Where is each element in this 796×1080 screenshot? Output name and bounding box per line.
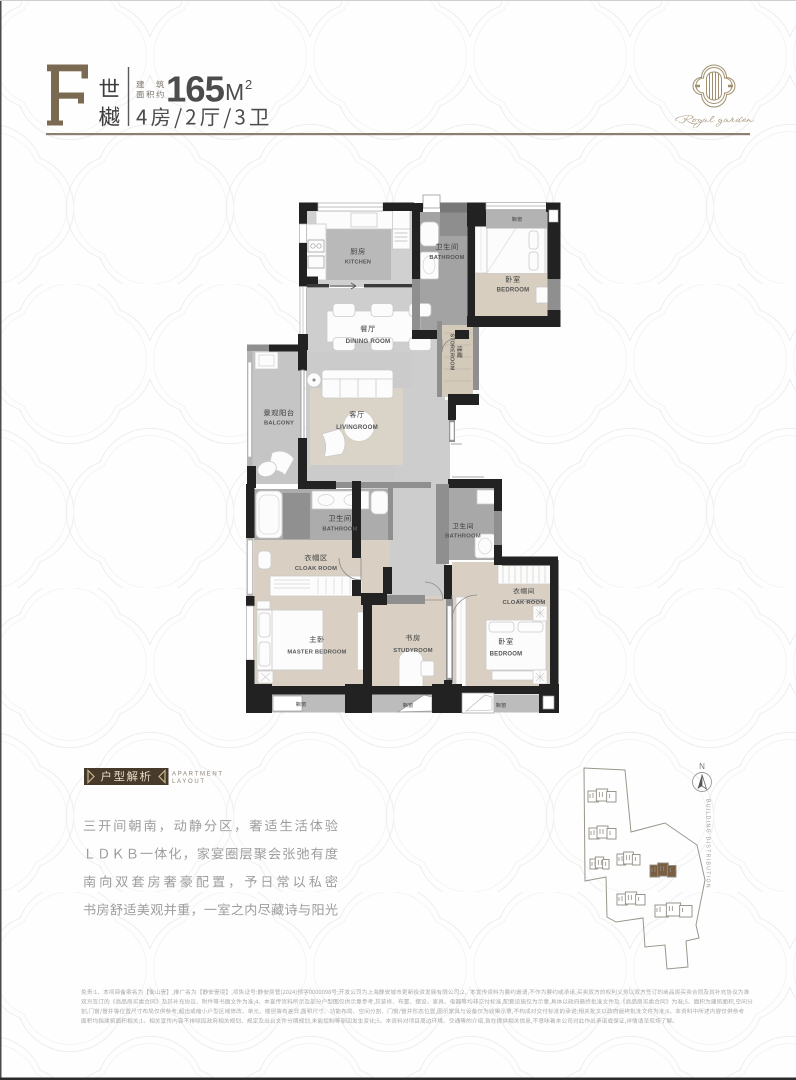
svg-text:BALCONY: BALCONY xyxy=(264,421,294,427)
svg-text:165: 165 xyxy=(166,69,225,110)
svg-text:CLOAK ROOM: CLOAK ROOM xyxy=(295,566,337,572)
svg-text:CLOAK ROOM: CLOAK ROOM xyxy=(503,600,546,606)
svg-text:LAYOUT: LAYOUT xyxy=(172,779,206,785)
svg-text:KITCHEN: KITCHEN xyxy=(345,260,371,266)
svg-text:BEDROOM: BEDROOM xyxy=(497,288,530,294)
svg-text:BEDROOM: BEDROOM xyxy=(490,652,523,658)
svg-text:MASTER BEDROOM: MASTER BEDROOM xyxy=(287,650,346,656)
svg-text:STUDYROOM: STUDYROOM xyxy=(393,648,432,654)
svg-text:BATHROOM: BATHROOM xyxy=(429,255,464,261)
svg-text:BUILDING DISTRIBUTION: BUILDING DISTRIBUTION xyxy=(705,799,711,889)
svg-text:BATHROOM: BATHROOM xyxy=(445,534,481,540)
svg-text:STOREROOM: STOREROOM xyxy=(449,333,455,370)
svg-text:LIVINGROOM: LIVINGROOM xyxy=(336,424,378,431)
svg-text:2: 2 xyxy=(245,77,252,92)
svg-text:M: M xyxy=(225,79,244,105)
svg-text:APARTMENT: APARTMENT xyxy=(172,772,224,778)
svg-text:N: N xyxy=(699,762,705,771)
svg-text:DINING ROOM: DINING ROOM xyxy=(346,338,391,345)
svg-text:BATHROOM: BATHROOM xyxy=(322,527,357,533)
